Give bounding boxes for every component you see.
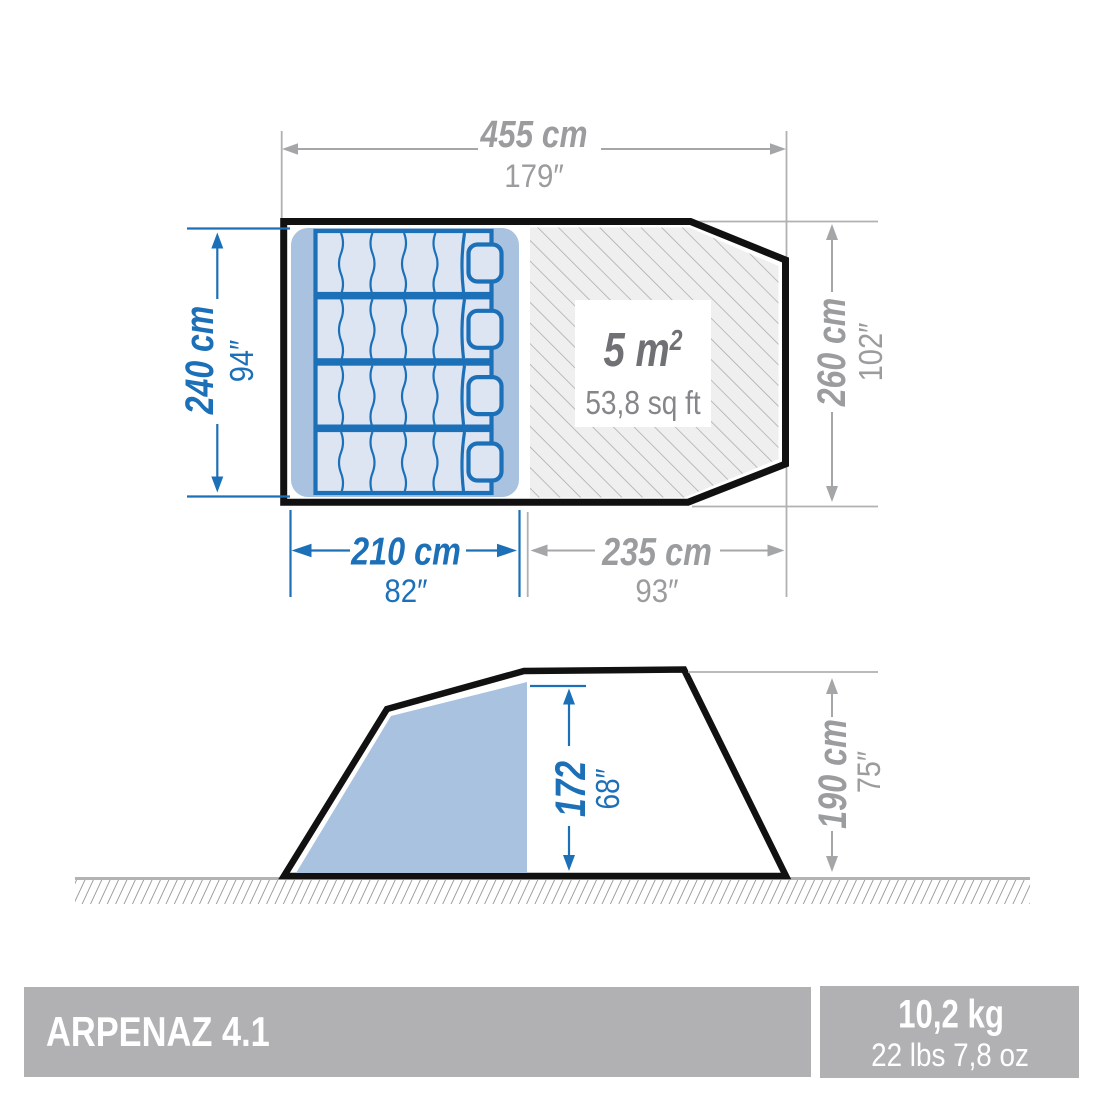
- svg-text:53,8 sq ft: 53,8 sq ft: [585, 385, 701, 422]
- svg-text:ARPENAZ 4.1: ARPENAZ 4.1: [46, 1009, 270, 1056]
- svg-text:235 cm: 235 cm: [601, 530, 712, 574]
- svg-text:172: 172: [547, 761, 595, 817]
- svg-text:10,2 kg: 10,2 kg: [898, 992, 1004, 1037]
- svg-text:455 cm: 455 cm: [480, 113, 588, 155]
- svg-text:75″: 75″: [852, 751, 888, 793]
- svg-text:179″: 179″: [504, 158, 564, 194]
- svg-text:68″: 68″: [590, 768, 627, 809]
- svg-text:93″: 93″: [635, 573, 678, 609]
- svg-text:210 cm: 210 cm: [350, 530, 461, 574]
- svg-text:82″: 82″: [384, 573, 427, 609]
- svg-text:102″: 102″: [852, 323, 889, 382]
- svg-text:240 cm: 240 cm: [177, 306, 222, 415]
- svg-text:260 cm: 260 cm: [809, 298, 854, 407]
- svg-text:22 lbs 7,8 oz: 22 lbs 7,8 oz: [871, 1038, 1029, 1073]
- svg-text:94″: 94″: [223, 340, 260, 383]
- svg-text:190 cm: 190 cm: [810, 719, 855, 829]
